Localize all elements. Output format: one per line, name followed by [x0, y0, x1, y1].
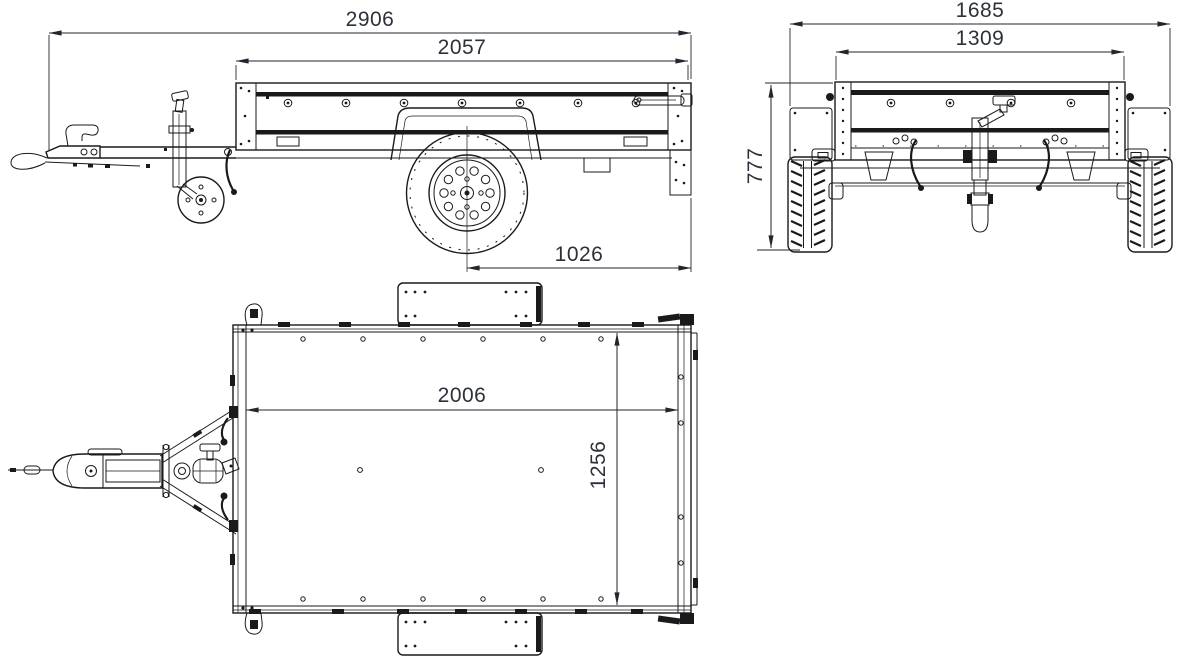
jockey-wheel-rear — [963, 96, 1015, 232]
side-view: 2906 2057 1026 — [11, 8, 692, 272]
dim-label-overall-width: 1685 — [956, 0, 1005, 22]
corner-bracket-rear-left — [245, 613, 262, 634]
dim-label-box-length: 2057 — [438, 36, 487, 59]
jockey-wheel-side — [169, 90, 224, 223]
road-wheel-side — [407, 126, 528, 272]
dim-bed-width: 1256 — [587, 333, 617, 605]
dim-label-inner-width: 1309 — [956, 27, 1005, 50]
fender-top-lower — [398, 613, 542, 655]
handbrake-lever-side — [226, 150, 233, 190]
wingnut-left — [826, 93, 834, 101]
dim-label-bed-width: 1256 — [587, 441, 610, 490]
tilt-lever-side — [634, 94, 692, 106]
dim-label-bed-length: 2006 — [438, 384, 487, 407]
fender-top-upper — [398, 283, 542, 325]
technical-drawing-canvas: 2906 2057 1026 — [0, 0, 1182, 667]
drawbar-top — [160, 406, 238, 534]
coupling-hitch-top — [53, 449, 162, 488]
dim-axle-to-rear: 1026 — [467, 198, 691, 272]
hinge-marks — [230, 322, 644, 614]
dim-label-height: 777 — [744, 148, 767, 185]
safety-cable-side — [11, 153, 140, 169]
dim-overall-length: 2906 — [49, 8, 691, 150]
top-view: 2006 1256 — [8, 283, 698, 655]
tailgate-top — [691, 333, 698, 605]
dim-label-overall-length: 2906 — [346, 8, 395, 31]
wheel-rear-right — [1128, 157, 1172, 252]
corner-latch-front-right — [658, 313, 694, 325]
corner-bracket-front-left — [245, 304, 262, 325]
rear-view: 1685 1309 777 — [744, 0, 1172, 252]
wingnut-right — [1126, 93, 1134, 101]
dim-box-length: 2057 — [236, 36, 688, 80]
rear-post-side — [670, 150, 691, 195]
dim-label-axle-to-rear: 1026 — [555, 243, 604, 266]
safety-cable-top — [8, 466, 53, 474]
wheel-rear-left — [788, 157, 832, 252]
corner-latch-rear-right — [658, 613, 694, 625]
dim-bed-length: 2006 — [246, 384, 678, 410]
fender-rear-right — [1125, 108, 1170, 161]
trailer-body-side — [225, 83, 693, 195]
coupling-hitch-side — [46, 125, 100, 158]
dim-inner-width: 1309 — [836, 27, 1124, 80]
jockey-wheel-top — [174, 444, 239, 483]
trailer-bed-top — [230, 304, 698, 634]
fender-rear-left — [790, 108, 835, 161]
